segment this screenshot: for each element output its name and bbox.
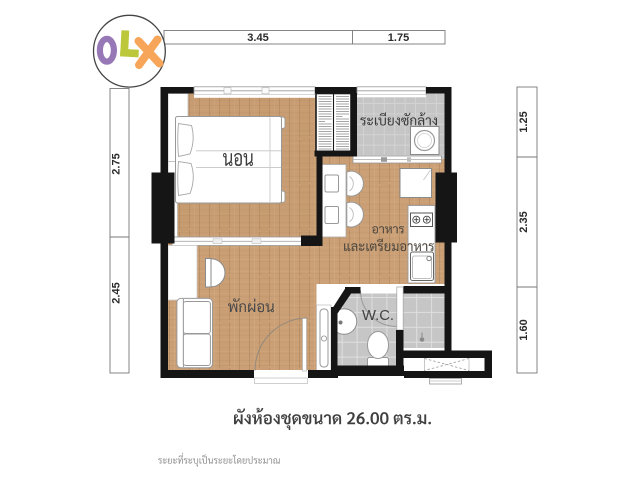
svg-text:3.45: 3.45 [247, 32, 268, 44]
svg-text:2.35: 2.35 [518, 211, 530, 232]
svg-text:1.25: 1.25 [518, 111, 530, 132]
svg-text:1.60: 1.60 [518, 319, 530, 340]
svg-text:2.45: 2.45 [111, 282, 123, 303]
svg-text:W.C.: W.C. [362, 308, 394, 324]
svg-text:1.75: 1.75 [388, 32, 409, 44]
svg-text:2.75: 2.75 [111, 153, 123, 174]
